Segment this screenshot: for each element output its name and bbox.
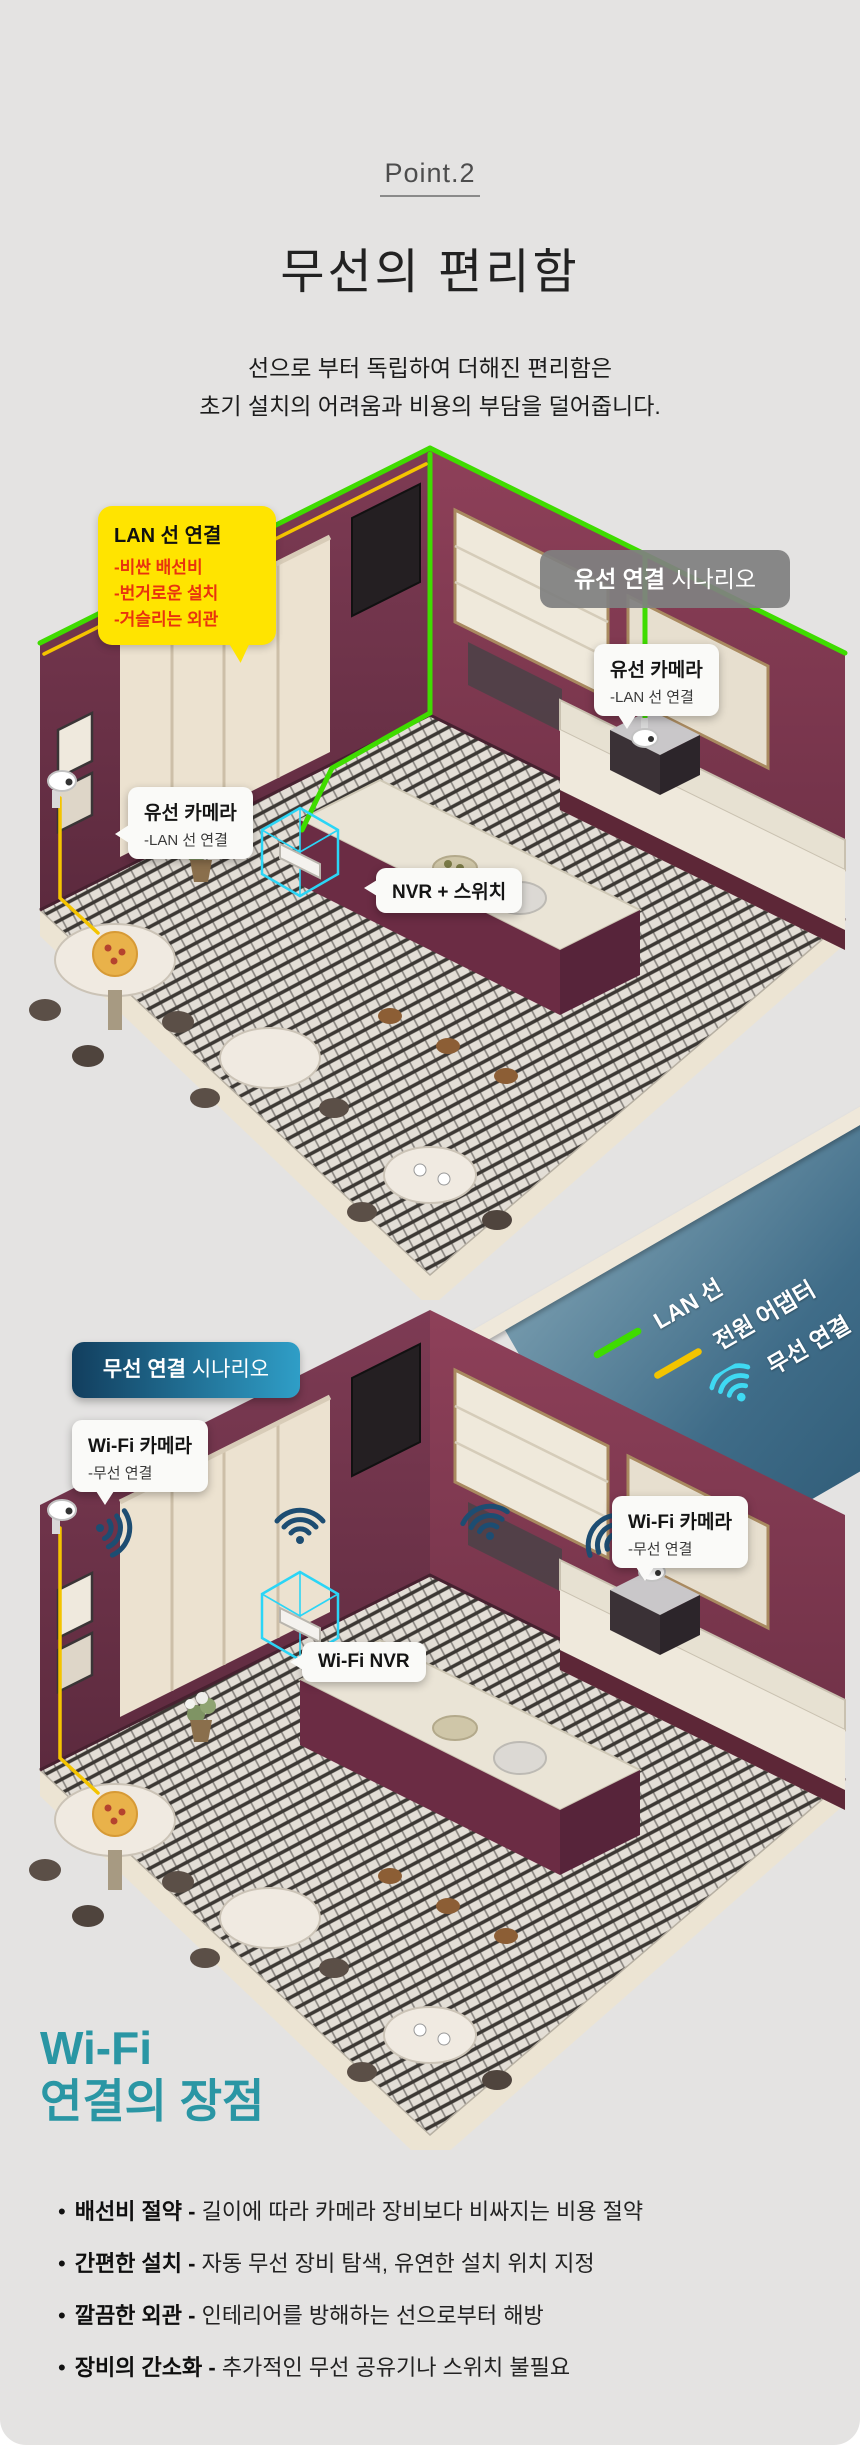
lan-warning-bubble: LAN 선 연결 -비싼 배선비 -번거로운 설치 -거슬리는 외관 (98, 506, 276, 645)
benefit-item-1: 배선비 절약 - 길이에 따라 카메라 장비보다 비싸지는 비용 절약 (58, 2186, 838, 2238)
benefit-item-2: 간편한 설치 - 자동 무선 장비 탐색, 유연한 설치 위치 지정 (58, 2238, 838, 2290)
wireless-room-illustration (0, 1290, 860, 2150)
benefits-heading: Wi-Fi 연결의 장점 (40, 2022, 264, 2128)
bubble-item-3: -거슬리는 외관 (114, 607, 264, 633)
wifi-nvr-label: Wi-Fi NVR (302, 1642, 426, 1682)
wired-camera-label-left: 유선 카메라 -LAN 선 연결 (128, 787, 253, 859)
benefits-heading-line2: 연결의 장점 (40, 2075, 264, 2128)
wired-scenario-badge: 유선 연결 시나리오 (540, 550, 790, 608)
benefit-item-4: 장비의 간소화 - 추가적인 무선 공유기나 스위치 불필요 (58, 2342, 838, 2394)
benefits-list: 배선비 절약 - 길이에 따라 카메라 장비보다 비싸지는 비용 절약 간편한 … (58, 2186, 838, 2394)
benefits-heading-line1: Wi-Fi (40, 2022, 264, 2075)
nvr-switch-label: NVR + 스위치 (376, 868, 522, 913)
wired-camera-label-right: 유선 카메라 -LAN 선 연결 (594, 644, 719, 716)
wifi-camera-label-left: Wi-Fi 카메라 -무선 연결 (72, 1420, 208, 1492)
wireless-scenario-badge: 무선 연결 시나리오 (72, 1342, 300, 1398)
wifi-camera-label-right: Wi-Fi 카메라 -무선 연결 (612, 1496, 748, 1568)
section-kicker: Point.2 (0, 158, 860, 189)
bubble-item-2: -번거로운 설치 (114, 581, 264, 607)
bubble-item-1: -비싼 배선비 (114, 555, 264, 581)
bubble-title: LAN 선 연결 (114, 519, 264, 548)
benefit-item-3: 깔끔한 외관 - 인테리어를 방해하는 선으로부터 해방 (58, 2290, 838, 2342)
subtitle-line1: 선으로 부터 독립하여 더해진 편리함은 (0, 349, 860, 387)
subtitle-line2: 초기 설치의 어려움과 비용의 부담을 덜어줍니다. (0, 387, 860, 425)
page-title: 무선의 편리함 (0, 232, 860, 302)
page-subtitle: 선으로 부터 독립하여 더해진 편리함은 초기 설치의 어려움과 비용의 부담을… (0, 349, 860, 425)
product-detail-page: Point.2 무선의 편리함 선으로 부터 독립하여 더해진 편리함은 초기 … (0, 0, 860, 2445)
